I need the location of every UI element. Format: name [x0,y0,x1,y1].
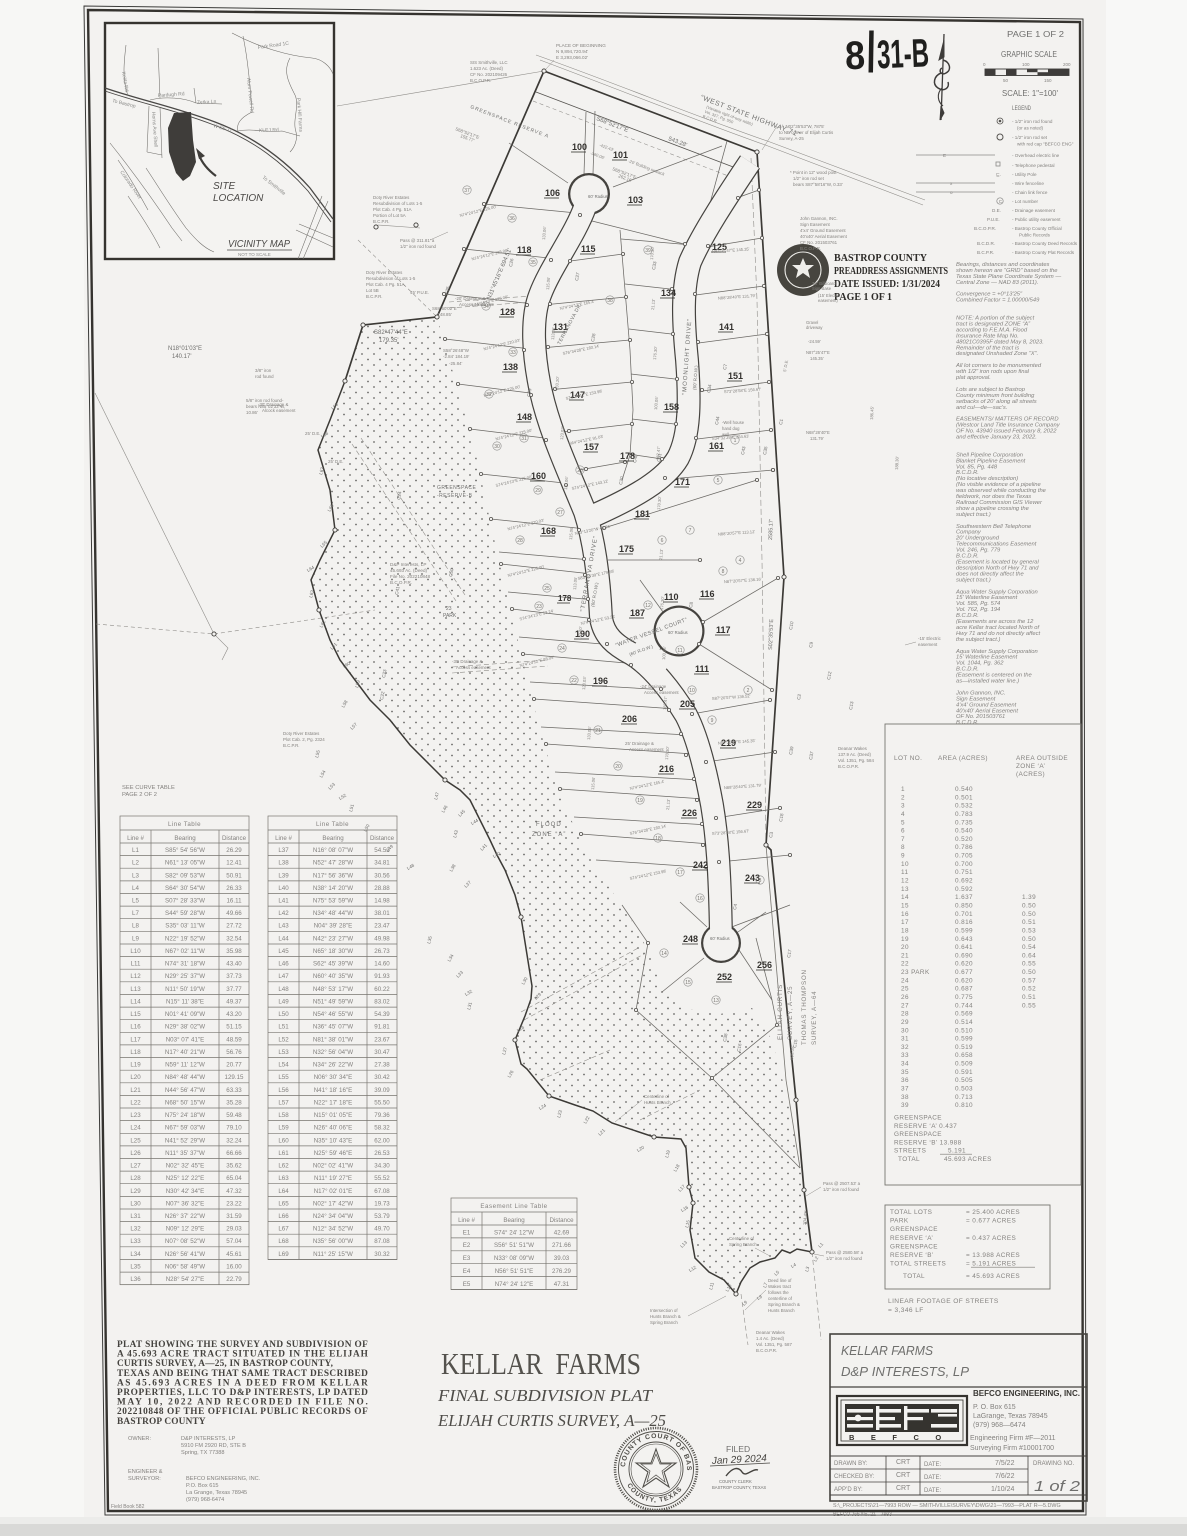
svg-text:40'x40' Aerial Easement: 40'x40' Aerial Easement [800,234,848,239]
svg-text:KELLAR FARMS: KELLAR FARMS [841,1343,933,1358]
svg-text:26.53: 26.53 [374,1150,390,1157]
svg-text:14.98: 14.98 [374,898,390,905]
svg-text:38: 38 [607,298,613,304]
svg-text:23: 23 [446,606,452,612]
svg-text:83.02: 83.02 [374,999,390,1006]
svg-text:Plot Cab. 2, Pg. 2324: Plot Cab. 2, Pg. 2324 [283,737,325,742]
svg-text:1.623 Ac. (Deed): 1.623 Ac. (Deed) [470,66,503,71]
svg-text:0.52: 0.52 [1022,986,1036,993]
svg-text:= 5.191 ACRES: = 5.191 ACRES [966,1261,1016,1268]
svg-text:La Grange, Texas 78945: La Grange, Texas 78945 [186,1490,247,1496]
svg-text:53.79: 53.79 [374,1213,390,1220]
svg-text:N11° 25' 15"W: N11° 25' 15"W [313,1251,353,1258]
svg-text:0.786: 0.786 [955,844,973,851]
svg-text:and effective January 23, 2022: and effective January 23, 2022. [956,435,1037,441]
svg-text:39.03: 39.03 [554,1255,570,1262]
svg-text:P. O. Box 615: P. O. Box 615 [973,1404,1016,1411]
svg-text:9: 9 [901,853,905,860]
svg-text:L67: L67 [278,1226,289,1233]
svg-text:79.36: 79.36 [374,1112,390,1119]
svg-text:L29: L29 [130,1188,141,1195]
svg-text:N41° 18' 16"E: N41° 18' 16"E [314,1087,353,1094]
svg-text:91.93: 91.93 [374,973,390,980]
svg-text:242: 242 [693,860,708,870]
svg-text:S82° 09' 53"W: S82° 09' 53"W [165,872,205,879]
svg-text:19: 19 [901,936,909,943]
svg-text:DATE:: DATE: [924,1488,942,1494]
svg-text:17: 17 [901,919,909,926]
svg-text:DATE ISSUED: 1/31/2024: DATE ISSUED: 1/31/2024 [834,278,940,290]
svg-text:0.51: 0.51 [1022,919,1036,926]
svg-text:Spring Branch: Spring Branch [729,1242,757,1247]
svg-text:Central Zone — NAD 83 (2011).: Central Zone — NAD 83 (2011). [956,280,1038,286]
svg-text:Doty River Estates: Doty River Estates [366,270,403,275]
svg-text:N25° 12' 22"E: N25° 12' 22"E [166,1175,205,1182]
svg-text:42.69: 42.69 [554,1229,570,1236]
svg-text:28.88: 28.88 [374,885,390,892]
svg-text:30.32: 30.32 [374,1251,390,1258]
svg-text:Bearing: Bearing [503,1217,525,1224]
svg-text:67.08: 67.08 [374,1188,390,1195]
svg-text:39.09: 39.09 [374,1087,390,1094]
svg-text:AREA OUTSIDE: AREA OUTSIDE [1016,755,1068,762]
svg-text:51.15: 51.15 [226,1024,242,1031]
svg-text:L53: L53 [278,1049,289,1056]
svg-text:N17° 02' 01"E: N17° 02' 01"E [314,1188,353,1195]
svg-text:3: 3 [759,878,762,884]
svg-text:N74° 31' 18"W: N74° 31' 18"W [165,961,205,968]
svg-text:- Bastrop County Plat Records: - Bastrop County Plat Records [1012,250,1075,255]
svg-text:Distance: Distance [549,1217,574,1224]
svg-text:- Overhead electric line: - Overhead electric line [1012,153,1060,158]
svg-text:rod found: rod found [255,374,274,379]
svg-text:L9: L9 [132,935,139,942]
svg-text:0.53: 0.53 [1022,927,1036,934]
svg-text:27: 27 [557,510,563,516]
svg-text:0.591: 0.591 [955,1069,973,1076]
svg-text:1 of 2: 1 of 2 [1034,1478,1081,1495]
svg-text:8: 8 [722,569,725,575]
svg-text:B.C.O.P.R.: B.C.O.P.R. [756,1348,777,1353]
svg-text:31: 31 [521,436,527,442]
svg-text:21: 21 [595,728,601,734]
svg-text:216: 216 [659,764,674,774]
svg-text:57.04: 57.04 [226,1238,242,1245]
svg-text:16: 16 [697,896,703,902]
svg-text:N15° 01' 05"E: N15° 01' 05"E [314,1112,353,1119]
svg-text:N68° 50' 15"W: N68° 50' 15"W [165,1099,205,1106]
svg-text:AS 45.693 ACRES IN A DEED: AS 45.693 ACRES IN A DEED FROM KELLAR [117,1378,368,1388]
svg-text:S58°26'48"W: S58°26'48"W [443,348,470,353]
svg-text:L28: L28 [130,1175,141,1182]
svg-text:0.690: 0.690 [955,952,973,959]
svg-text:129.15: 129.15 [225,1074,244,1081]
svg-text:1.39: 1.39 [1022,894,1036,901]
svg-text:N11° 35' 37"W: N11° 35' 37"W [165,1150,205,1157]
svg-text:49.37: 49.37 [226,999,242,1006]
svg-text:L5: L5 [132,898,139,905]
svg-text:0.599: 0.599 [955,1036,973,1043]
svg-text:2585.17': 2585.17' [768,519,775,540]
svg-text:CURTIS SURVEY, A—25, IN BA: CURTIS SURVEY, A—25, IN BASTROP COUNTY, [117,1359,333,1369]
svg-text:⊑․: ⊑․ [996,172,1002,177]
svg-text:5910 FM 2920 RD, STE B: 5910 FM 2920 RD, STE B [181,1443,246,1449]
svg-text:35: 35 [901,1069,909,1076]
svg-text:3: 3 [901,803,905,810]
svg-text:6: 6 [901,828,905,835]
svg-text:0.503: 0.503 [955,1086,973,1093]
svg-text:S56° 51' 51"W: S56° 51' 51"W [494,1242,534,1249]
svg-text:13: 13 [901,886,909,893]
svg-text:110: 110 [664,592,679,602]
svg-text:N02° 02' 41"W: N02° 02' 41"W [313,1163,353,1170]
svg-text:34.30: 34.30 [374,1163,390,1170]
svg-text:S82°47'44"E: S82°47'44"E [374,330,408,336]
svg-text:0.620: 0.620 [955,961,973,968]
svg-text:L44: L44 [278,935,289,942]
svg-text:106: 106 [545,188,560,198]
svg-text:D&P INTERESTS, LP: D&P INTERESTS, LP [841,1364,969,1379]
svg-text:SURVEY, A—25: SURVEY, A—25 [787,986,794,1040]
svg-text:0.850: 0.850 [955,903,973,910]
svg-text:0.55: 0.55 [1022,1002,1036,1009]
svg-text:L22: L22 [130,1099,141,1106]
svg-text:45.693 ACRES: 45.693 ACRES [944,1156,992,1163]
svg-text:E5: E5 [463,1281,471,1288]
svg-text:60' Radius: 60' Radius [588,194,608,199]
svg-text:N38° 14' 20"W: N38° 14' 20"W [313,885,353,892]
svg-text:49.66: 49.66 [226,910,242,917]
svg-text:Portion of Lot 5A: Portion of Lot 5A [373,213,406,218]
svg-text:16: 16 [901,911,909,918]
svg-text:- 1/2" iron rod found: - 1/2" iron rod found [1012,119,1053,124]
svg-text:0.569: 0.569 [955,1011,973,1018]
svg-text:D&P Interests, LP: D&P Interests, LP [390,562,426,567]
svg-text:L69: L69 [278,1251,289,1258]
svg-text:LINEAR FOOTAGE OF STREETS: LINEAR FOOTAGE OF STREETS [888,1298,999,1305]
svg-text:0.744: 0.744 [955,1002,973,1009]
svg-text:Survey, A-25: Survey, A-25 [779,136,804,141]
svg-text:N44° 56' 47"W: N44° 56' 47"W [165,1087,205,1094]
svg-text:11: 11 [901,869,908,876]
svg-text:AREA (ACRES): AREA (ACRES) [938,755,988,762]
svg-text:178: 178 [558,594,572,603]
svg-text:7: 7 [901,836,905,843]
svg-text:RESERVE ‘B’: RESERVE ‘B’ [890,1252,934,1259]
svg-text:25' D.E.: 25' D.E. [305,431,320,436]
svg-text:43.40: 43.40 [226,961,242,968]
svg-text:L3: L3 [132,872,139,879]
svg-text:0.54: 0.54 [1022,944,1036,951]
svg-text:1.4 Ac. (Deed): 1.4 Ac. (Deed) [756,1336,785,1341]
svg-text:24: 24 [559,646,565,652]
svg-text:47.31: 47.31 [554,1281,570,1288]
svg-text:Spring Branch &: Spring Branch & [768,1302,800,1307]
svg-text:VICINITY MAP: VICINITY MAP [228,238,290,250]
svg-text:33: 33 [510,350,516,356]
svg-text:S07° 28' 33"W: S07° 28' 33"W [165,898,205,905]
svg-text:(979) 968—6474: (979) 968—6474 [973,1422,1026,1429]
svg-text:23.47: 23.47 [374,923,390,930]
svg-text:- Public utility easement: - Public utility easement [1012,217,1061,222]
svg-text:B.C.O.P.R.: B.C.O.P.R. [470,78,491,83]
svg-text:45' P.U.E.: 45' P.U.E. [410,290,429,295]
svg-text:Wakes tract: Wakes tract [768,1284,792,1289]
svg-text:1.637: 1.637 [955,894,973,901]
svg-text:L50: L50 [278,1011,289,1018]
svg-text:N52° 47' 28"W: N52° 47' 28"W [313,860,353,867]
svg-text:-24' Drainage: -24' Drainage [640,684,667,689]
svg-text:= 0.437 ACRES: = 0.437 ACRES [966,1235,1016,1242]
svg-text:= 25.400 ACRES: = 25.400 ACRES [966,1209,1020,1216]
svg-text:- Bastrop County Official: - Bastrop County Official [1012,226,1062,231]
svg-text:115: 115 [581,244,596,254]
svg-text:229: 229 [747,800,762,810]
svg-text:Resubdivision of Lots 1-5: Resubdivision of Lots 1-5 [366,276,416,281]
svg-text:L1: L1 [132,847,139,854]
svg-text:B.C.P.R.: B.C.P.R. [977,250,994,255]
svg-text:Centerline of: Centerline of [729,1236,755,1241]
svg-text:34.81: 34.81 [374,860,390,867]
svg-text:Distance: Distance [370,835,395,842]
svg-text:33: 33 [901,1052,909,1059]
svg-text:0.50: 0.50 [1022,903,1036,910]
svg-text:TEXAS AND BEING THAT SAME: TEXAS AND BEING THAT SAME TRACT DESCRIBE… [117,1369,368,1379]
svg-text:L18: L18 [130,1049,141,1056]
svg-text:131.79': 131.79' [810,436,824,441]
svg-text:Zetka Ln: Zetka Ln [197,99,217,106]
svg-text:10: 10 [901,861,909,868]
svg-text:87.08: 87.08 [374,1238,390,1245]
svg-text:145.35': 145.35' [810,356,824,361]
svg-text:0.700: 0.700 [955,861,973,868]
svg-text:-25.84': -25.84' [449,361,462,366]
svg-text:0.692: 0.692 [955,878,973,885]
svg-text:N29° 38' 02"W: N29° 38' 02"W [165,1024,205,1031]
svg-text:L16: L16 [130,1024,141,1031]
svg-text:Combined Factor = 1.00000/549: Combined Factor = 1.00000/549 [956,298,1040,304]
svg-text:65.04: 65.04 [226,1175,242,1182]
svg-text:18: 18 [655,836,661,842]
svg-text:CRT: CRT [896,1485,911,1492]
svg-text:PARK: PARK [890,1218,909,1225]
svg-text:1/10/24: 1/10/24 [991,1486,1014,1493]
svg-text:0.509: 0.509 [955,1061,973,1068]
svg-text:L55: L55 [278,1074,289,1081]
svg-text:16.00: 16.00 [226,1264,242,1271]
svg-text:Resubdivision of Lots 1-5: Resubdivision of Lots 1-5 [373,201,423,206]
svg-text:0.816: 0.816 [955,919,973,926]
svg-text:18: 18 [901,927,909,934]
svg-text:79.10: 79.10 [226,1125,242,1132]
svg-text:L36: L36 [130,1276,141,1283]
svg-text:157: 157 [584,442,599,452]
svg-text:175: 175 [619,544,634,554]
svg-text:N17° 56' 36"W: N17° 56' 36"W [313,872,353,879]
svg-text:L61: L61 [278,1150,289,1157]
svg-text:L52: L52 [278,1036,289,1043]
svg-text:L46: L46 [278,961,289,968]
svg-text:0.540: 0.540 [955,828,973,835]
svg-text:0.50: 0.50 [1022,969,1036,976]
svg-text:Vol. 1351, Pg. 584: Vol. 1351, Pg. 584 [838,758,874,763]
svg-text:26.33: 26.33 [226,885,242,892]
svg-text:0.677: 0.677 [955,969,973,976]
svg-text:4: 4 [901,811,905,818]
svg-text:L34: L34 [130,1251,141,1258]
svg-text:0.505: 0.505 [955,1077,973,1084]
svg-text:N54° 46' 55"W: N54° 46' 55"W [313,1011,353,1018]
svg-text:S68°50'02"E: S68°50'02"E [432,306,457,311]
svg-text:THOMAS THOMPSON: THOMAS THOMPSON [801,969,808,1045]
svg-text:0.519: 0.519 [955,1044,973,1051]
svg-text:E: E [943,153,946,158]
svg-text:bears S87°58'16"W, 0.33': bears S87°58'16"W, 0.33' [793,182,843,187]
svg-text:188.30': 188.30' [894,456,900,470]
svg-text:BASTROP COUNTY: BASTROP COUNTY [117,1417,206,1427]
svg-text:0.735: 0.735 [955,819,973,826]
svg-text:P.O. Box 615: P.O. Box 615 [186,1483,219,1489]
svg-text:CHECKED BY:: CHECKED BY: [834,1474,875,1480]
svg-text:ZONE ‘A’: ZONE ‘A’ [1016,763,1046,770]
svg-text:20: 20 [615,764,621,770]
svg-text:Distance: Distance [222,835,247,842]
svg-text:0.705: 0.705 [955,853,973,860]
svg-text:S62° 45' 39"W: S62° 45' 39"W [313,961,353,968]
svg-text:8: 8 [901,844,905,851]
svg-text:B.C.O.P.R.: B.C.O.P.R. [800,246,821,251]
svg-text:designated Unshaded Zone “X”.: designated Unshaded Zone “X”. [956,351,1038,357]
svg-text:66.66: 66.66 [226,1150,242,1157]
svg-text:39: 39 [901,1102,909,1109]
svg-text:L64: L64 [278,1188,289,1195]
svg-text:PREADDRESS ASSIGNMENTS: PREADDRESS ASSIGNMENTS [834,265,948,277]
svg-text:N35° 56' 00"W: N35° 56' 00"W [313,1238,353,1245]
svg-text:0.510: 0.510 [955,1027,973,1034]
svg-text:N 9,894,720.94': N 9,894,720.94' [556,49,588,54]
svg-text:KLEJ Rd: KLEJ Rd [259,127,279,134]
svg-text:Pass @ 2507.53' a: Pass @ 2507.53' a [823,1181,861,1186]
svg-text:56.76: 56.76 [226,1049,242,1056]
svg-text:E3: E3 [463,1255,471,1262]
svg-text:25' D.E.: 25' D.E. [328,459,343,464]
svg-text:S85° 54' 56"W: S85° 54' 56"W [165,847,205,854]
svg-text:L12: L12 [130,973,141,980]
svg-text:25' Drainage &: 25' Drainage & [625,741,654,746]
svg-text:0.641: 0.641 [955,944,973,951]
svg-text:- 1/2" iron rod set: - 1/2" iron rod set [1012,135,1048,140]
svg-text:5.191: 5.191 [948,1148,966,1155]
svg-text:Bearing: Bearing [174,835,196,842]
svg-text:27.38: 27.38 [374,1062,390,1069]
svg-text:Intersection of: Intersection of [650,1308,678,1313]
svg-text:128: 128 [500,307,515,317]
svg-text:187: 187 [630,608,645,618]
svg-text:256: 256 [757,960,772,970]
svg-text:19: 19 [637,798,643,804]
svg-text:S64° 30' 54"W: S64° 30' 54"W [165,885,205,892]
svg-text:GRAPHIC SCALE: GRAPHIC SCALE [1001,49,1057,59]
svg-text:SCALE: 1"=100': SCALE: 1"=100' [1002,88,1058,98]
svg-text:+/- N02°35'53"W, 7875': +/- N02°35'53"W, 7875' [779,124,825,129]
svg-text:with red cap "BEFCO ENG": with red cap "BEFCO ENG" [1017,142,1074,147]
svg-text:L39: L39 [278,872,289,879]
svg-text:L27: L27 [130,1163,141,1170]
svg-text:3/8" iron: 3/8" iron [255,368,272,373]
svg-text:Doty River Estates: Doty River Estates [283,731,320,736]
svg-text:DRAWN BY:: DRAWN BY: [834,1461,868,1467]
svg-text:35.28: 35.28 [226,1099,242,1106]
svg-text:L17: L17 [130,1036,141,1043]
svg-text:-148.85': -148.85' [436,312,452,317]
svg-text:14: 14 [901,894,909,901]
svg-text:N60° 40' 35"W: N60° 40' 35"W [313,973,353,980]
svg-text:20: 20 [901,944,909,951]
svg-text:168: 168 [541,526,556,536]
svg-text:12: 12 [645,603,651,609]
svg-text:158: 158 [664,402,679,412]
svg-text:BEFCO ENGINEERING, INC.: BEFCO ENGINEERING, INC. [186,1476,261,1482]
svg-text:Line #: Line # [458,1217,475,1224]
svg-text:subject tract.): subject tract.) [956,577,991,583]
svg-text:N28° 54' 27"E: N28° 54' 27"E [166,1276,205,1283]
svg-text:N51° 49' 59"W: N51° 49' 59"W [313,999,353,1006]
svg-text:37: 37 [464,188,470,194]
svg-text:36: 36 [509,216,515,222]
svg-text:P.U.E.: P.U.E. [987,217,1000,222]
svg-text:-Well house: -Well house [722,420,745,425]
svg-text:63.33: 63.33 [226,1087,242,1094]
svg-text:Easement Line Table: Easement Line Table [480,1203,547,1210]
svg-text:50.91: 50.91 [226,872,242,879]
svg-text:23.67: 23.67 [374,1036,390,1043]
svg-text:31-B: 31-B [876,31,930,77]
svg-text:and cul—de—sac's.: and cul—de—sac's. [956,405,1007,411]
svg-text:N35° 10' 43"E: N35° 10' 43"E [314,1137,353,1144]
svg-text:N22° 17' 18"E: N22° 17' 18"E [314,1099,353,1106]
svg-text:N67° 59' 03"W: N67° 59' 03"W [165,1125,205,1132]
svg-text:179.35': 179.35' [379,338,399,344]
svg-text:54.39: 54.39 [374,1011,390,1018]
svg-text:19.73: 19.73 [374,1200,390,1207]
svg-text:0.643: 0.643 [955,936,973,943]
svg-text:Alcock easement: Alcock easement [262,408,296,413]
svg-text:22: 22 [571,678,577,684]
svg-text:FILED: FILED [726,1444,750,1454]
svg-text:Centerline of: Centerline of [644,1094,670,1099]
svg-text:N29° 25' 37"W: N29° 25' 37"W [165,973,205,980]
svg-text:E1: E1 [463,1229,471,1236]
svg-text:100: 100 [1022,62,1030,67]
svg-text:TOTAL: TOTAL [898,1156,920,1163]
svg-text:N36° 45' 07"W: N36° 45' 07"W [313,1024,353,1031]
svg-text:= 3,346 LF: = 3,346 LF [888,1307,924,1314]
svg-text:21.13': 21.13' [650,298,656,310]
svg-text:0.810: 0.810 [955,1102,973,1109]
svg-text:29: 29 [535,488,541,494]
svg-text:- Bastrop County Deed Records: - Bastrop County Deed Records [1012,241,1078,246]
svg-text:13: 13 [713,998,719,1004]
svg-text:S35° 03' 11"W: S35° 03' 11"W [165,923,205,930]
svg-text:0.514: 0.514 [955,1019,973,1026]
svg-text:35: 35 [530,260,536,266]
svg-text:N07° 36' 32"E: N07° 36' 32"E [166,1200,205,1207]
svg-text:N09° 12' 29"E: N09° 12' 29"E [166,1226,205,1233]
svg-text:-30' Drainage &: -30' Drainage & [258,402,288,407]
svg-text:N03° 07' 41"E: N03° 07' 41"E [166,1036,205,1043]
svg-text:- Lot number: - Lot number [1012,199,1039,204]
svg-text:47.32: 47.32 [226,1188,242,1195]
